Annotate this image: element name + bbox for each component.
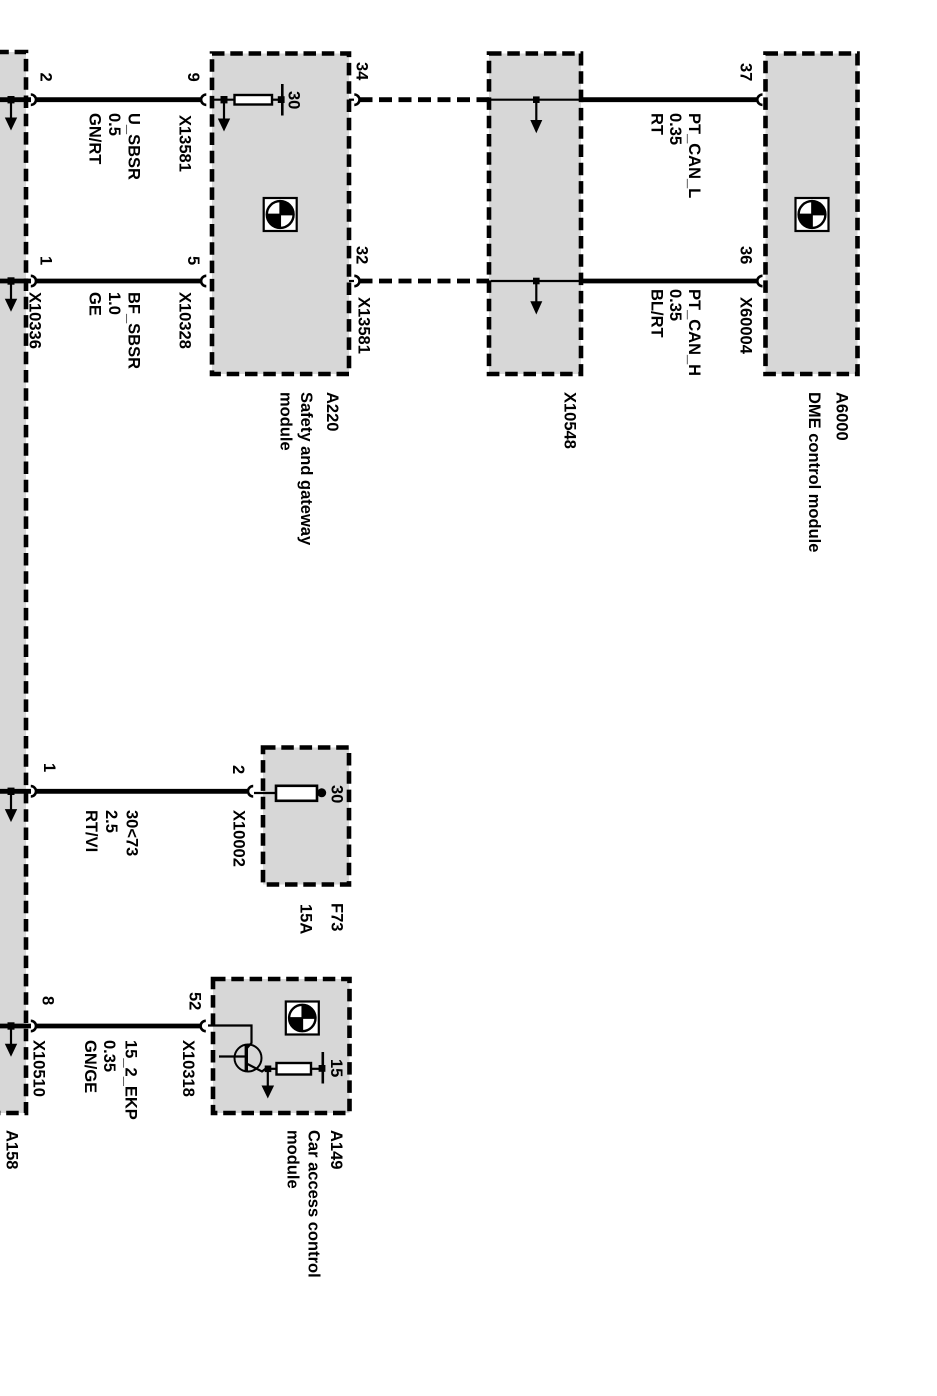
svg-text:X10002: X10002 xyxy=(230,810,248,867)
svg-text:1: 1 xyxy=(37,256,55,265)
svg-text:2: 2 xyxy=(37,73,55,82)
svg-text:34: 34 xyxy=(353,62,371,81)
svg-text:1: 1 xyxy=(40,763,58,772)
svg-text:15: 15 xyxy=(327,1059,345,1077)
svg-text:BF_SBSR: BF_SBSR xyxy=(125,292,143,369)
svg-text:DME control module: DME control module xyxy=(805,392,823,552)
svg-text:X10510: X10510 xyxy=(30,1040,48,1097)
svg-text:15_2_EKP: 15_2_EKP xyxy=(122,1040,140,1120)
svg-text:X10336: X10336 xyxy=(26,292,44,349)
svg-text:0.35: 0.35 xyxy=(666,113,684,145)
svg-text:X10318: X10318 xyxy=(179,1040,197,1097)
svg-text:0.35: 0.35 xyxy=(100,1040,118,1072)
svg-text:15A: 15A xyxy=(297,904,315,934)
svg-text:0.5: 0.5 xyxy=(105,113,123,136)
svg-text:30: 30 xyxy=(285,91,303,109)
svg-text:module: module xyxy=(284,1130,302,1189)
svg-text:9: 9 xyxy=(184,73,202,82)
svg-text:30: 30 xyxy=(328,785,346,803)
svg-text:PT_CAN_L: PT_CAN_L xyxy=(685,113,703,198)
svg-text:36: 36 xyxy=(737,246,755,264)
svg-text:37: 37 xyxy=(737,63,755,81)
svg-text:Car access control: Car access control xyxy=(305,1130,323,1278)
svg-text:X60004: X60004 xyxy=(737,297,755,355)
svg-text:A6000: A6000 xyxy=(833,392,851,441)
svg-text:RT: RT xyxy=(648,113,666,135)
svg-text:2: 2 xyxy=(229,765,247,774)
svg-text:A149: A149 xyxy=(327,1130,345,1169)
svg-text:Safety and gateway: Safety and gateway xyxy=(297,392,315,546)
svg-text:GN/RT: GN/RT xyxy=(86,113,104,164)
svg-text:PT_CAN_H: PT_CAN_H xyxy=(685,289,703,376)
svg-text:8: 8 xyxy=(39,996,57,1005)
svg-text:GN/GE: GN/GE xyxy=(81,1040,99,1093)
svg-text:BL/RT: BL/RT xyxy=(648,289,666,338)
svg-text:0.35: 0.35 xyxy=(666,289,684,321)
svg-text:X13581: X13581 xyxy=(176,115,194,172)
svg-text:2.5: 2.5 xyxy=(102,810,120,833)
svg-text:F73: F73 xyxy=(328,903,346,931)
svg-text:module: module xyxy=(277,392,295,451)
svg-text:GE: GE xyxy=(86,292,104,316)
svg-text:RT/VI: RT/VI xyxy=(82,810,100,852)
svg-text:A158: A158 xyxy=(3,1130,21,1169)
svg-text:30<73: 30<73 xyxy=(123,810,141,856)
svg-text:32: 32 xyxy=(353,246,371,264)
svg-text:1.0: 1.0 xyxy=(105,292,123,315)
svg-text:U_SBSR: U_SBSR xyxy=(125,113,143,180)
svg-text:5: 5 xyxy=(184,256,202,265)
svg-text:A220: A220 xyxy=(323,392,341,431)
svg-text:X10548: X10548 xyxy=(561,392,579,449)
svg-text:X10328: X10328 xyxy=(176,292,194,349)
svg-text:X13581: X13581 xyxy=(355,297,373,354)
svg-text:52: 52 xyxy=(186,992,204,1010)
